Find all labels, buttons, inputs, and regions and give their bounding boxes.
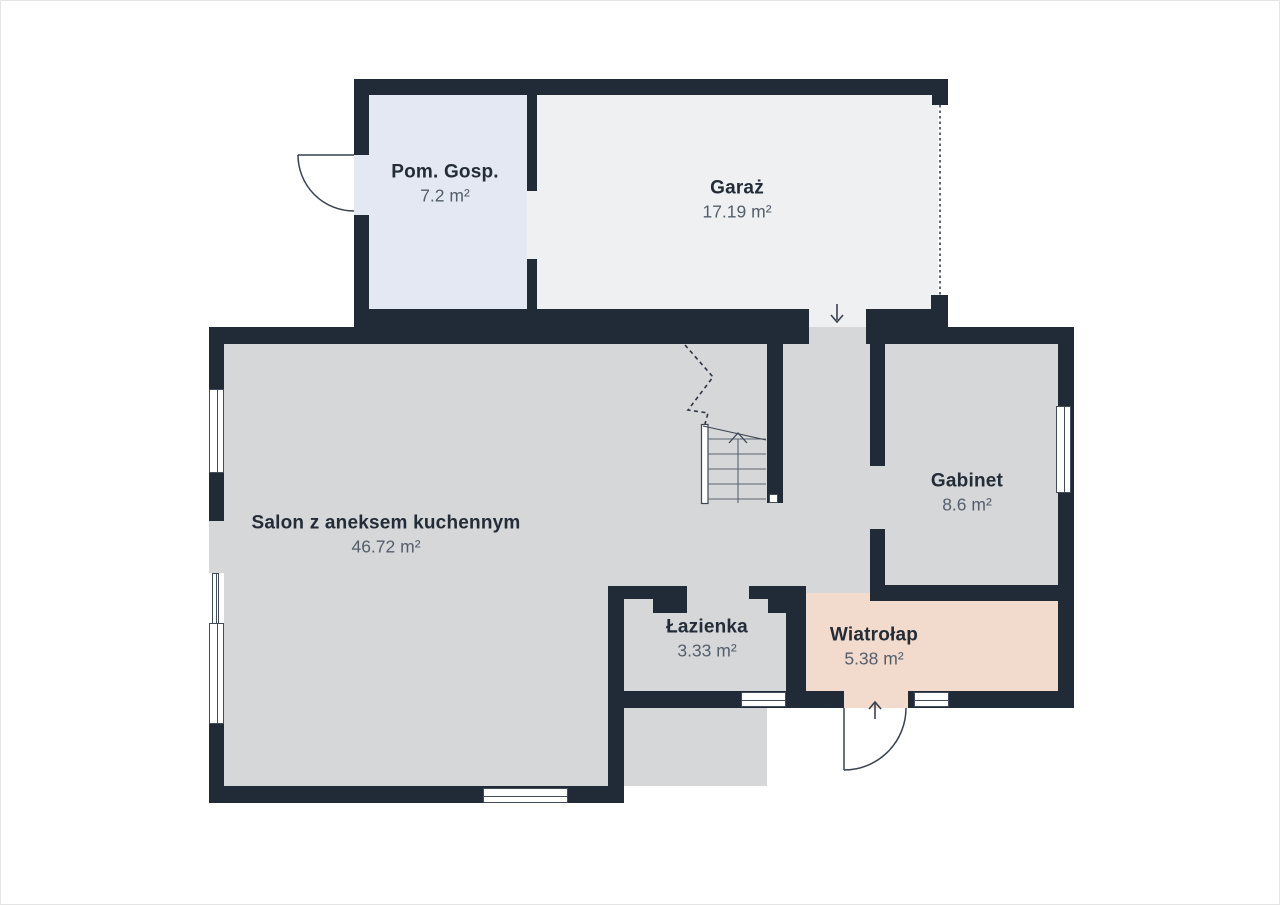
plan-annotations <box>1 1 1280 905</box>
room-label-garaz: Garaż 17.19 m² <box>702 177 771 224</box>
room-label-wiatrolap: Wiatrołap 5.38 m² <box>830 624 918 671</box>
room-label-pom-gosp: Pom. Gosp. 7.2 m² <box>391 161 499 208</box>
stair-cut-line <box>685 345 713 424</box>
arrow-up-icon <box>869 702 881 719</box>
room-label-gabinet: Gabinet 8.6 m² <box>931 470 1003 517</box>
room-name: Gabinet <box>931 470 1003 494</box>
arrow-down-icon <box>831 304 843 322</box>
room-name: Pom. Gosp. <box>391 161 499 185</box>
room-area: 17.19 m² <box>702 201 771 224</box>
room-name: Garaż <box>702 177 771 201</box>
room-name: Łazienka <box>666 616 748 640</box>
room-label-lazienka: Łazienka 3.33 m² <box>666 616 748 663</box>
room-area: 7.2 m² <box>391 185 499 208</box>
room-name: Wiatrołap <box>830 624 918 648</box>
room-area: 46.72 m² <box>252 536 521 559</box>
floor-plan-canvas: Pom. Gosp. 7.2 m² Garaż 17.19 m² Salon z… <box>0 0 1280 905</box>
staircase <box>702 425 767 504</box>
room-label-salon: Salon z aneksem kuchennym 46.72 m² <box>252 512 521 559</box>
room-name: Salon z aneksem kuchennym <box>252 512 521 536</box>
room-area: 8.6 m² <box>931 494 1003 517</box>
door-swing-icon <box>298 155 354 211</box>
room-area: 3.33 m² <box>666 640 748 663</box>
room-area: 5.38 m² <box>830 648 918 671</box>
